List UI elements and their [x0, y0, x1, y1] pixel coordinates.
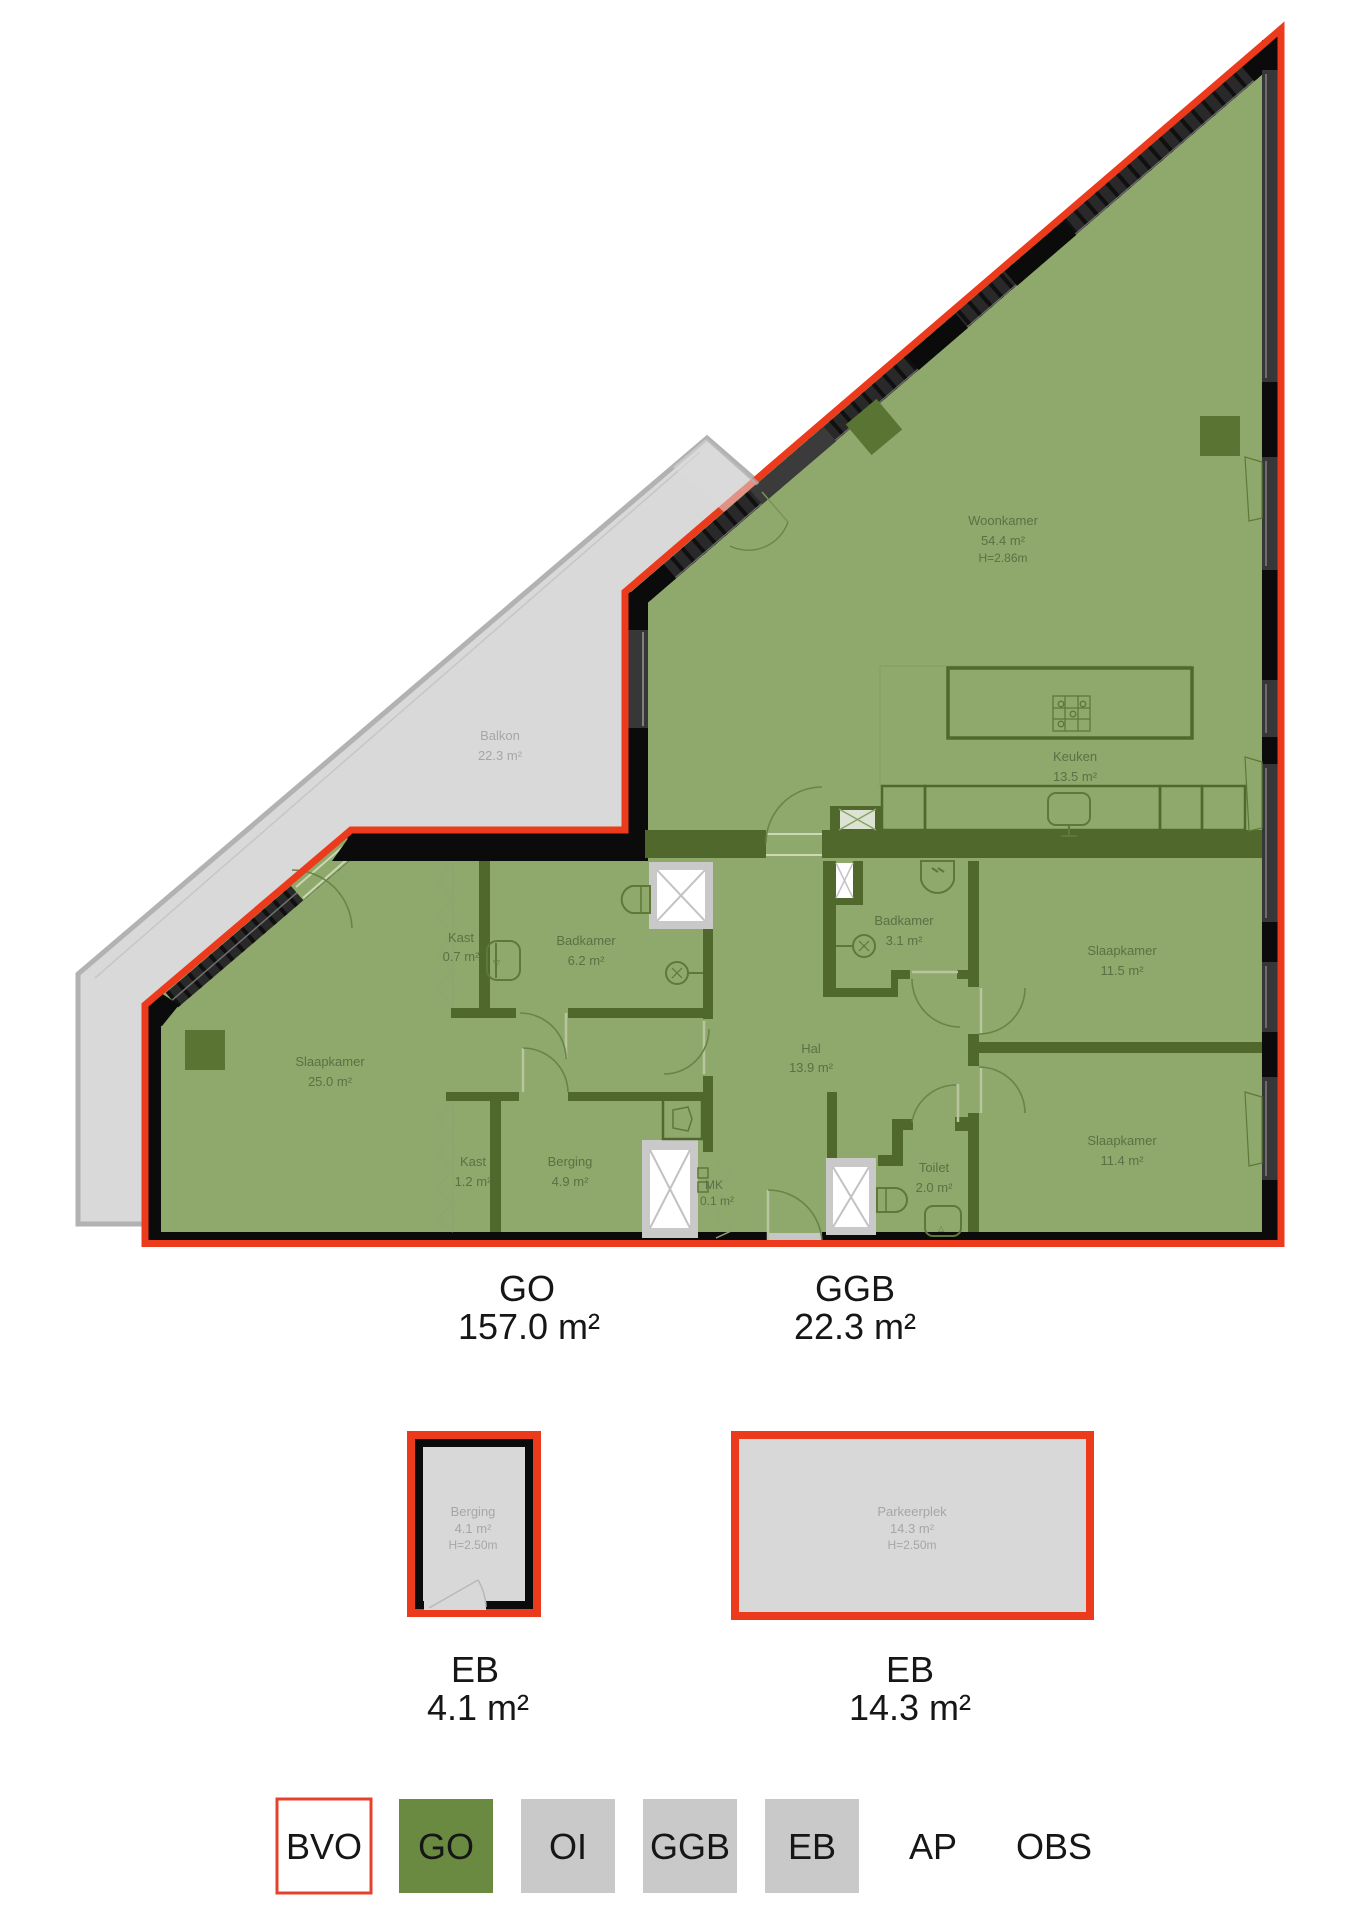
svg-text:Kast: Kast [460, 1154, 486, 1169]
svg-text:Kast: Kast [448, 930, 474, 945]
svg-text:△: △ [938, 1224, 945, 1233]
svg-text:4.1 m²: 4.1 m² [455, 1521, 493, 1536]
svg-text:OBS: OBS [1016, 1826, 1092, 1867]
svg-text:GO: GO [418, 1826, 474, 1867]
svg-text:EB: EB [451, 1649, 499, 1690]
svg-text:4.1 m²: 4.1 m² [427, 1687, 529, 1728]
svg-text:Slaapkamer: Slaapkamer [1087, 943, 1157, 958]
svg-text:H=2.50m: H=2.50m [887, 1538, 936, 1552]
svg-text:4.9 m²: 4.9 m² [552, 1174, 590, 1189]
svg-text:Toilet: Toilet [919, 1160, 950, 1175]
svg-text:▽: ▽ [493, 958, 500, 968]
svg-text:Keuken: Keuken [1053, 749, 1097, 764]
svg-text:1.2 m²: 1.2 m² [455, 1174, 493, 1189]
svg-text:Badkamer: Badkamer [556, 933, 616, 948]
svg-text:157.0 m²: 157.0 m² [458, 1306, 600, 1347]
svg-text:11.4 m²: 11.4 m² [1100, 1153, 1144, 1168]
svg-text:AP: AP [909, 1826, 957, 1867]
svg-text:MK: MK [705, 1178, 723, 1192]
svg-text:3.1 m²: 3.1 m² [886, 933, 924, 948]
svg-text:Woonkamer: Woonkamer [968, 513, 1039, 528]
svg-text:14.3 m²: 14.3 m² [890, 1521, 935, 1536]
svg-text:BVO: BVO [286, 1826, 362, 1867]
svg-text:Badkamer: Badkamer [874, 913, 934, 928]
svg-text:EB: EB [788, 1826, 836, 1867]
svg-text:11.5 m²: 11.5 m² [1100, 963, 1144, 978]
svg-text:H=2.50m: H=2.50m [448, 1538, 497, 1552]
svg-text:0.1 m²: 0.1 m² [700, 1194, 734, 1208]
svg-text:Parkeerplek: Parkeerplek [877, 1504, 947, 1519]
svg-text:13.9 m²: 13.9 m² [789, 1060, 834, 1075]
svg-text:Berging: Berging [548, 1154, 593, 1169]
svg-text:OI: OI [549, 1826, 587, 1867]
svg-text:0.7 m²: 0.7 m² [443, 949, 481, 964]
svg-text:2.0 m²: 2.0 m² [916, 1180, 954, 1195]
svg-text:Slaapkamer: Slaapkamer [1087, 1133, 1157, 1148]
svg-text:25.0 m²: 25.0 m² [308, 1074, 353, 1089]
svg-text:13.5 m²: 13.5 m² [1053, 769, 1098, 784]
svg-text:Berging: Berging [451, 1504, 496, 1519]
svg-text:Balkon: Balkon [480, 728, 520, 743]
svg-text:14.3 m²: 14.3 m² [849, 1687, 971, 1728]
svg-text:54.4 m²: 54.4 m² [981, 533, 1026, 548]
svg-text:6.2 m²: 6.2 m² [568, 953, 606, 968]
svg-text:GO: GO [499, 1268, 555, 1309]
svg-text:22.3 m²: 22.3 m² [794, 1306, 916, 1347]
svg-text:GGB: GGB [815, 1268, 895, 1309]
svg-text:H=2.86m: H=2.86m [978, 551, 1027, 565]
svg-text:Slaapkamer: Slaapkamer [295, 1054, 365, 1069]
svg-text:GGB: GGB [650, 1826, 730, 1867]
svg-text:Hal: Hal [801, 1041, 821, 1056]
svg-text:EB: EB [886, 1649, 934, 1690]
svg-text:22.3 m²: 22.3 m² [478, 748, 523, 763]
